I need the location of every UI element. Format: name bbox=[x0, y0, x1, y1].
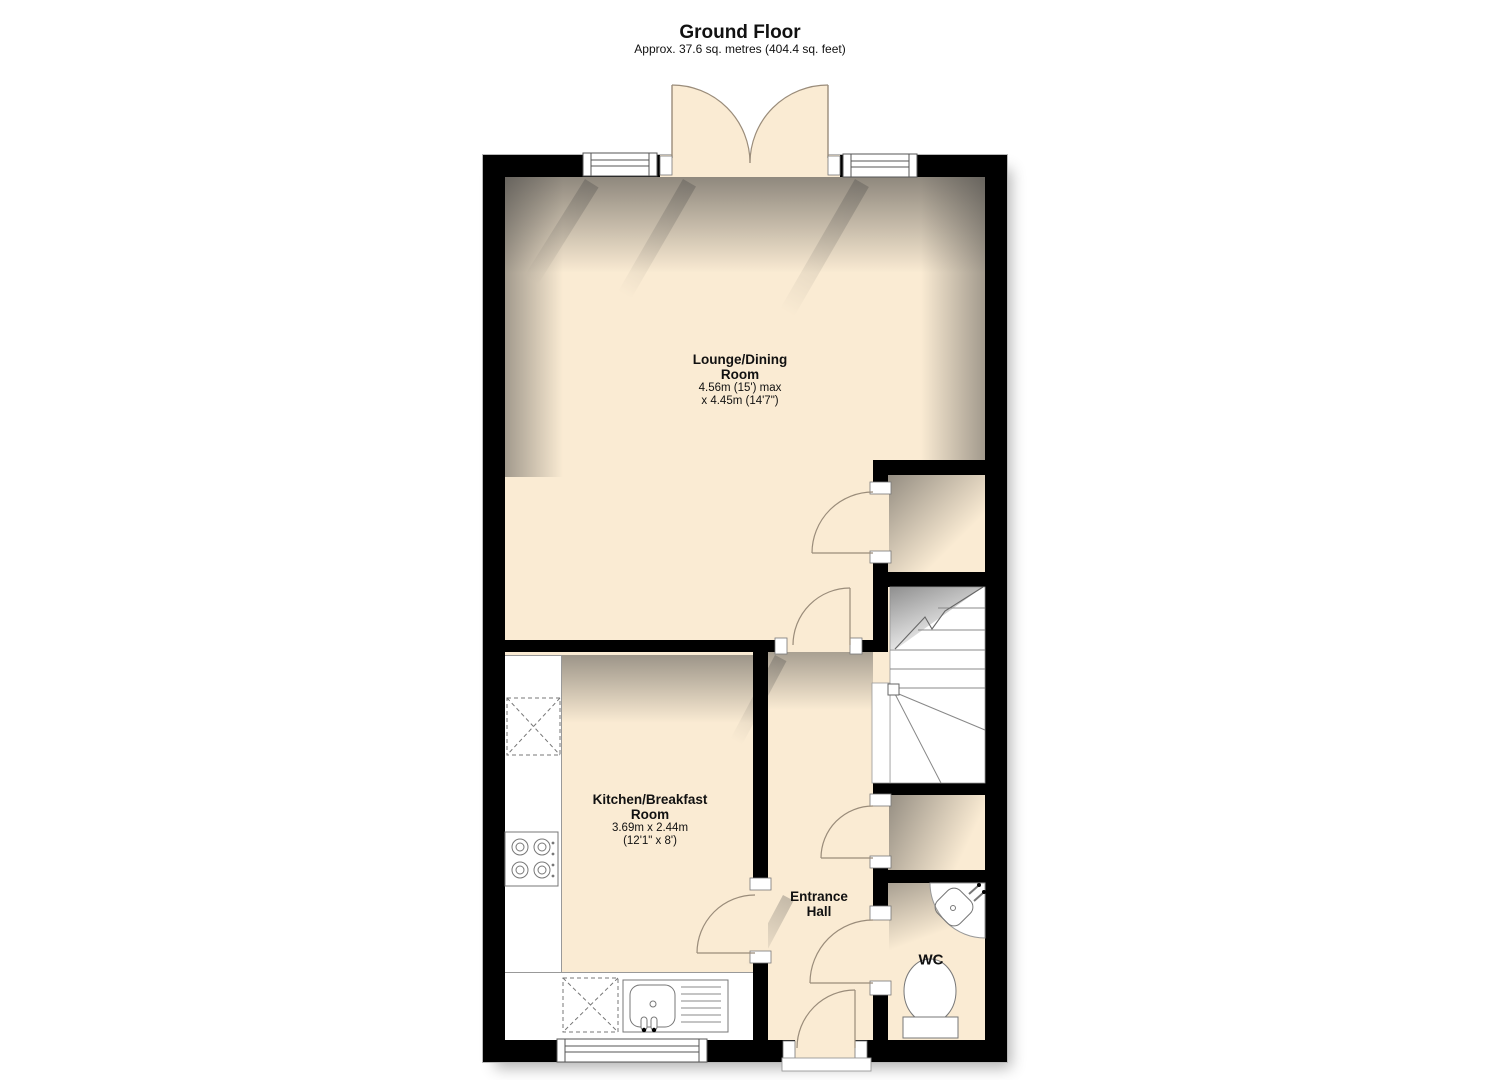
corner-basin-icon bbox=[930, 883, 986, 938]
floor-plan: Lounge/Dining Room 4.56m (15') max x 4.4… bbox=[483, 155, 1007, 1062]
lounge-dining-room-label: Lounge/Dining Room 4.56m (15') max x 4.4… bbox=[693, 352, 787, 408]
wc-label: WC bbox=[919, 953, 944, 970]
door-swing-icon bbox=[697, 492, 873, 1048]
plan-linework bbox=[483, 65, 1007, 1075]
sink-drainer-icon bbox=[623, 980, 728, 1032]
kitchen-breakfast-room-label: Kitchen/Breakfast Room 3.69m x 2.44m (12… bbox=[593, 792, 708, 848]
hob-icon bbox=[505, 832, 558, 886]
entrance-hall-label: Entrance Hall bbox=[790, 889, 848, 919]
page-title: Ground Floor bbox=[679, 22, 800, 44]
staircase-icon bbox=[872, 587, 985, 783]
window-icon bbox=[557, 1039, 707, 1062]
window-icon bbox=[843, 154, 917, 177]
page-subtitle: Approx. 37.6 sq. metres (404.4 sq. feet) bbox=[634, 42, 845, 56]
toilet-icon bbox=[903, 959, 958, 1038]
window-icon bbox=[583, 153, 657, 176]
